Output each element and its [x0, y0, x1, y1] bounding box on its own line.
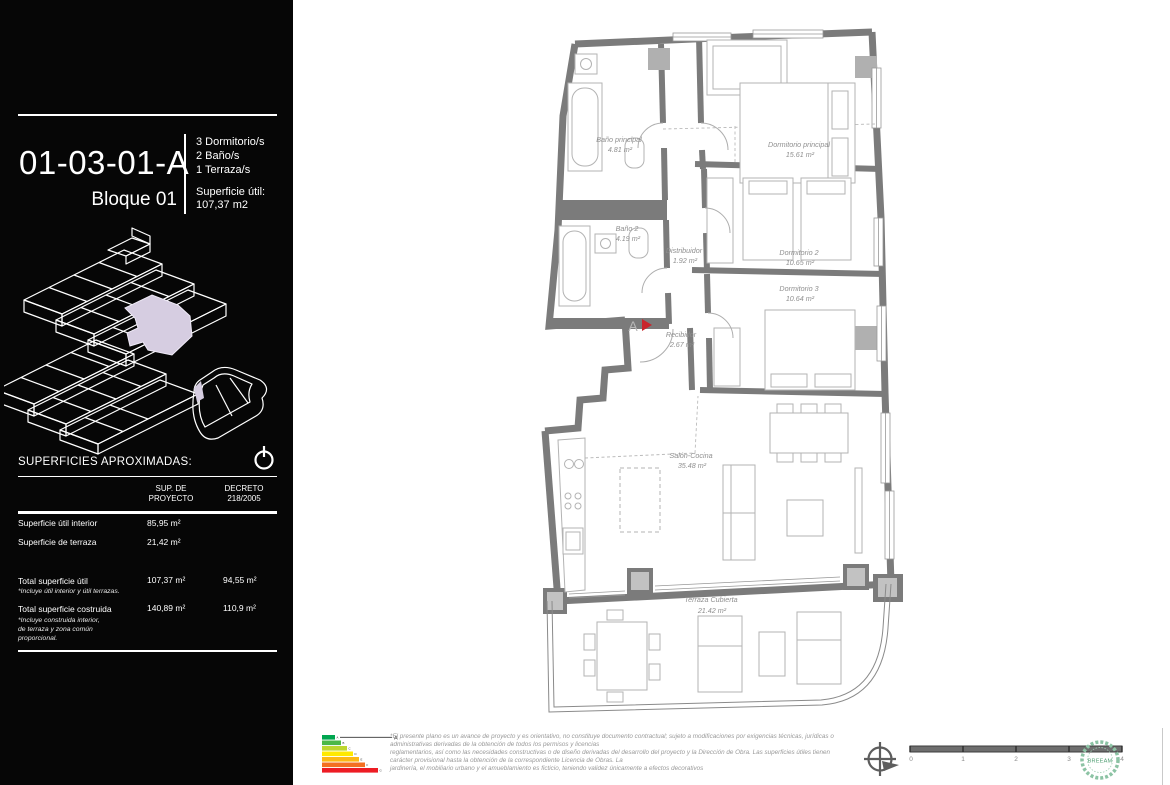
- svg-text:D: D: [355, 752, 357, 756]
- bath-divider-wall: [561, 200, 667, 220]
- row-util-interior-label: Superficie útil interior: [18, 518, 97, 528]
- row-terraza-label: Superficie de terraza: [18, 537, 96, 547]
- wardrobe-dorm3: [714, 328, 740, 386]
- feature-bedrooms: 3 Dormitorio/s: [196, 135, 264, 149]
- unit-features: 3 Dormitorio/s 2 Baño/s 1 Terraza/s: [196, 135, 264, 177]
- column-header-proyecto: SUP. DE PROYECTO: [139, 484, 203, 504]
- compass-icon: [862, 740, 902, 778]
- svg-text:A: A: [337, 736, 339, 740]
- north-orientation-icon: [250, 444, 278, 472]
- bathtub-principal: [568, 83, 602, 171]
- divider: [18, 114, 277, 116]
- breeam-text: BREEAM: [1088, 759, 1113, 765]
- feature-bathrooms: 2 Baño/s: [196, 149, 264, 163]
- row-total-util-label: Total superficie útil: [18, 576, 88, 586]
- floor-plan: A Baño principal 4.81 m² Dormitorio prin…: [535, 28, 965, 728]
- svg-text:0: 0: [909, 756, 913, 763]
- kitchen-island: [620, 468, 660, 532]
- kitchen-counter: [558, 438, 585, 592]
- room-label-banio-2: Baño 2 4.19 m²: [616, 224, 641, 243]
- dining-table: [770, 404, 848, 462]
- plan-sheet: 01-03-01-A Bloque 01 3 Dormitorio/s 2 Ba…: [0, 0, 1170, 785]
- building-axonometric-illustration: [4, 220, 291, 458]
- terrace-table-set: [584, 610, 660, 702]
- room-label-recibidor: Recibidor 2.67 m²: [666, 330, 698, 349]
- svg-text:C: C: [349, 747, 351, 751]
- title-separator: [184, 134, 186, 214]
- entrance-letter: A: [628, 318, 638, 334]
- row-construida-decreto: 110,9 m²: [223, 603, 256, 613]
- column-header-decreto: DECRETO 218/2005: [214, 484, 274, 504]
- row-construida-note-2: de terraza y zona común: [18, 626, 93, 633]
- recibidor-wall: [549, 318, 669, 329]
- sun-loungers: [698, 612, 841, 692]
- room-label-dormitorio-3: Dormitorio 3 10.64 m²: [779, 284, 820, 303]
- row-terraza-value: 21,42 m²: [147, 537, 181, 547]
- breeam-logo: BREEAM: [1077, 737, 1123, 783]
- row-total-util-proyecto: 107,37 m²: [147, 575, 185, 585]
- sink-2: [595, 234, 616, 253]
- table-bottom-rule: [18, 650, 277, 652]
- unit-code: 01-03-01-A: [19, 144, 189, 182]
- feature-terraces: 1 Terraza/s: [196, 163, 264, 177]
- block-label: Bloque 01: [91, 189, 177, 211]
- upper-block-wireframe: [24, 228, 226, 366]
- room-label-distribuidor: Distribuidor 1.92 m²: [666, 246, 704, 265]
- svg-text:F: F: [367, 763, 369, 767]
- svg-text:1: 1: [961, 756, 965, 763]
- disclaimer-text: *El presente plano es un avance de proye…: [390, 733, 860, 773]
- surface-label: Superficie útil:: [196, 186, 265, 199]
- surfaces-heading: SUPERFICIES APROXIMADAS:: [18, 456, 192, 468]
- table-top-rule: [18, 476, 277, 477]
- surface-value: 107,37 m2: [196, 199, 265, 212]
- surface-useful: Superficie útil: 107,37 m2: [196, 186, 265, 212]
- svg-text:G: G: [380, 769, 382, 773]
- table-header-rule: [18, 511, 277, 514]
- coffee-table: [787, 500, 823, 536]
- wardrobe-dorm2: [707, 178, 733, 263]
- energy-bars: [322, 735, 378, 773]
- sidebar: 01-03-01-A Bloque 01 3 Dormitorio/s 2 Ba…: [0, 0, 293, 785]
- plot-outline: [193, 367, 267, 439]
- page-edge-line: [1162, 728, 1163, 785]
- row-construida-note-3: proporcional.: [18, 635, 57, 642]
- row-construida-proyecto: 140,89 m²: [147, 603, 185, 613]
- svg-text:B: B: [343, 741, 345, 745]
- row-construida-label: Total superficie costruida: [18, 604, 112, 614]
- row-total-util-decreto: 94,55 m²: [223, 575, 257, 585]
- sofa: [723, 465, 755, 560]
- tv-unit: [855, 468, 862, 553]
- svg-text:2: 2: [1014, 756, 1018, 763]
- room-label-terraza: Terraza Cubierta 21.42 m²: [684, 595, 739, 615]
- row-total-util-note: *Incluye útil interior y útil terrazas.: [18, 588, 120, 595]
- bathtub-2: [559, 226, 590, 306]
- row-util-interior-value: 85,95 m²: [147, 518, 181, 528]
- svg-text:3: 3: [1067, 756, 1071, 763]
- bed-principal: [740, 83, 855, 183]
- svg-text:E: E: [361, 758, 363, 762]
- bed-dorm3: [765, 310, 855, 390]
- room-label-salon-cocina: Salón-Cocina 35.48 m²: [669, 451, 714, 470]
- row-construida-note-1: *Incluye construida interior,: [18, 617, 100, 624]
- sink-principal: [575, 54, 597, 74]
